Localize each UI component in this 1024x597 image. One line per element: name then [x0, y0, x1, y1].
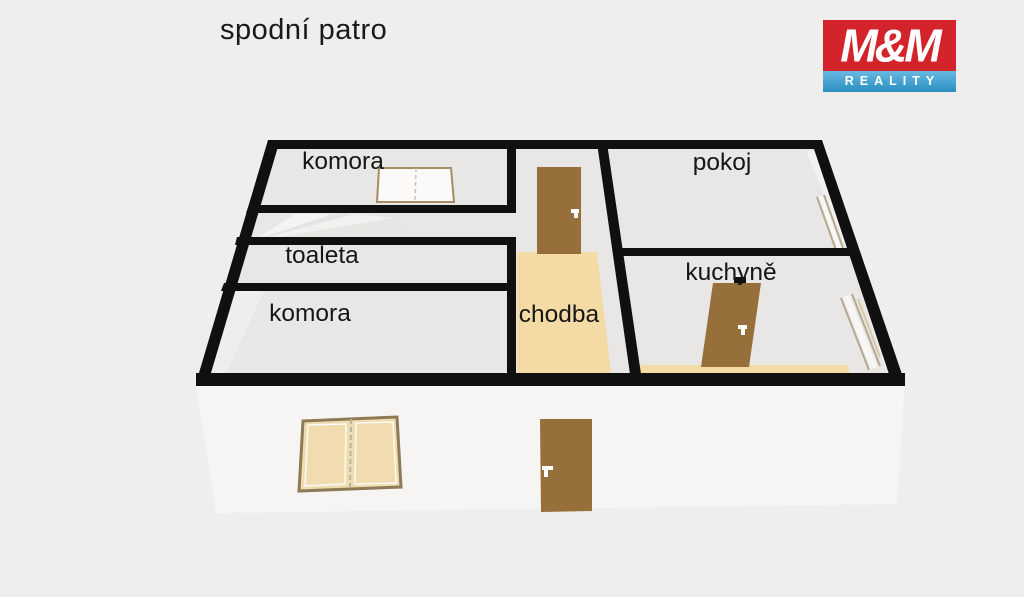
front-door-handle — [542, 466, 553, 470]
front-window — [299, 417, 401, 491]
floorplan-page: spodní patro M&M REALITY — [0, 0, 1024, 597]
floorplan-3d-drawing: komora toaleta komora chodba pokoj kuchy… — [0, 0, 1024, 597]
label-kuchyne: kuchyně — [685, 259, 776, 286]
pokoj-kuchyne-wall — [613, 248, 861, 256]
chodba-door — [537, 167, 581, 254]
chodba-left-wall-lower — [507, 237, 516, 373]
logo-reality-text: REALITY — [839, 75, 940, 88]
label-chodba: chodba — [519, 301, 600, 328]
label-komora-left: komora — [269, 300, 351, 327]
toaleta-bottom-wall — [221, 283, 511, 291]
label-pokoj: pokoj — [693, 149, 752, 176]
komora-window-door — [377, 168, 454, 202]
chodba-left-wall-upper — [507, 149, 516, 213]
label-toaleta: toaleta — [285, 242, 359, 269]
komora-top-wall — [246, 205, 516, 213]
bottom-exterior-wall — [196, 373, 905, 386]
front-door — [540, 419, 592, 512]
toaleta-top-wall — [235, 237, 516, 245]
label-komora-top: komora — [302, 148, 384, 175]
